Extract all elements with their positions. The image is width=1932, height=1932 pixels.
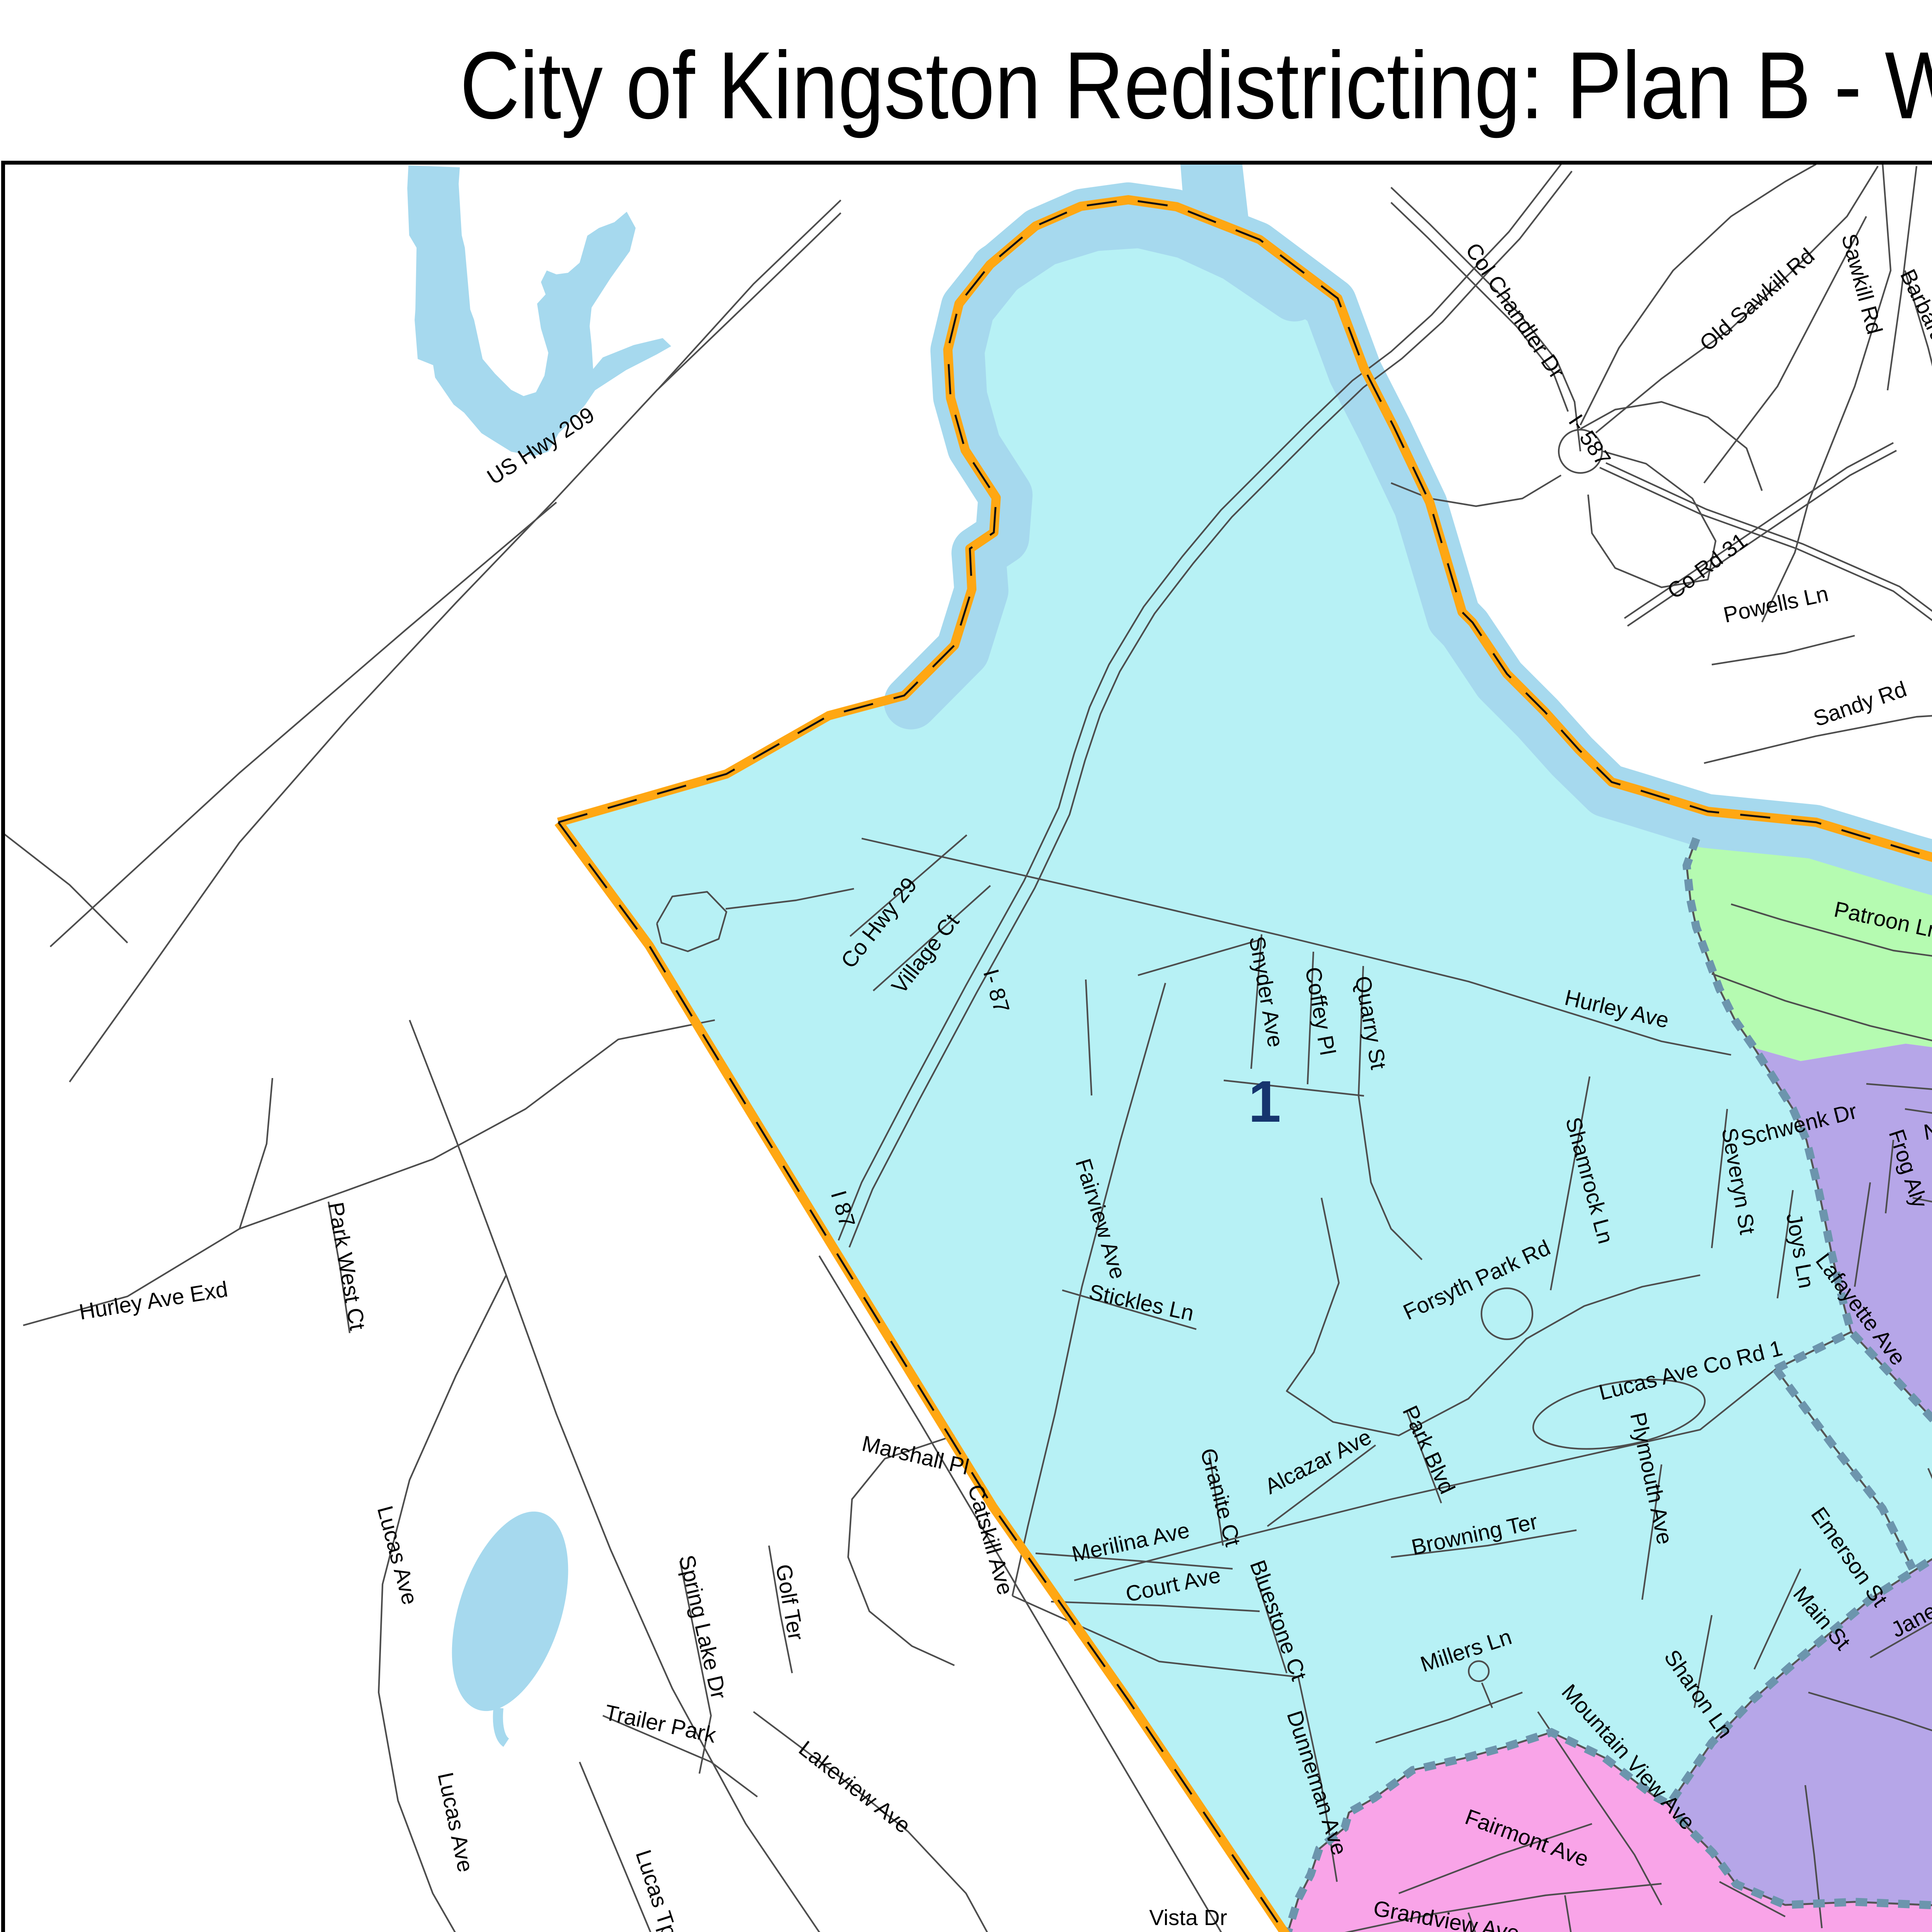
svg-text:City of Kingston Redistricting: City of Kingston Redistricting: Plan B -… [460, 32, 1932, 139]
svg-text:1: 1 [1248, 1069, 1281, 1134]
svg-text:Vista Dr: Vista Dr [1149, 1905, 1227, 1930]
